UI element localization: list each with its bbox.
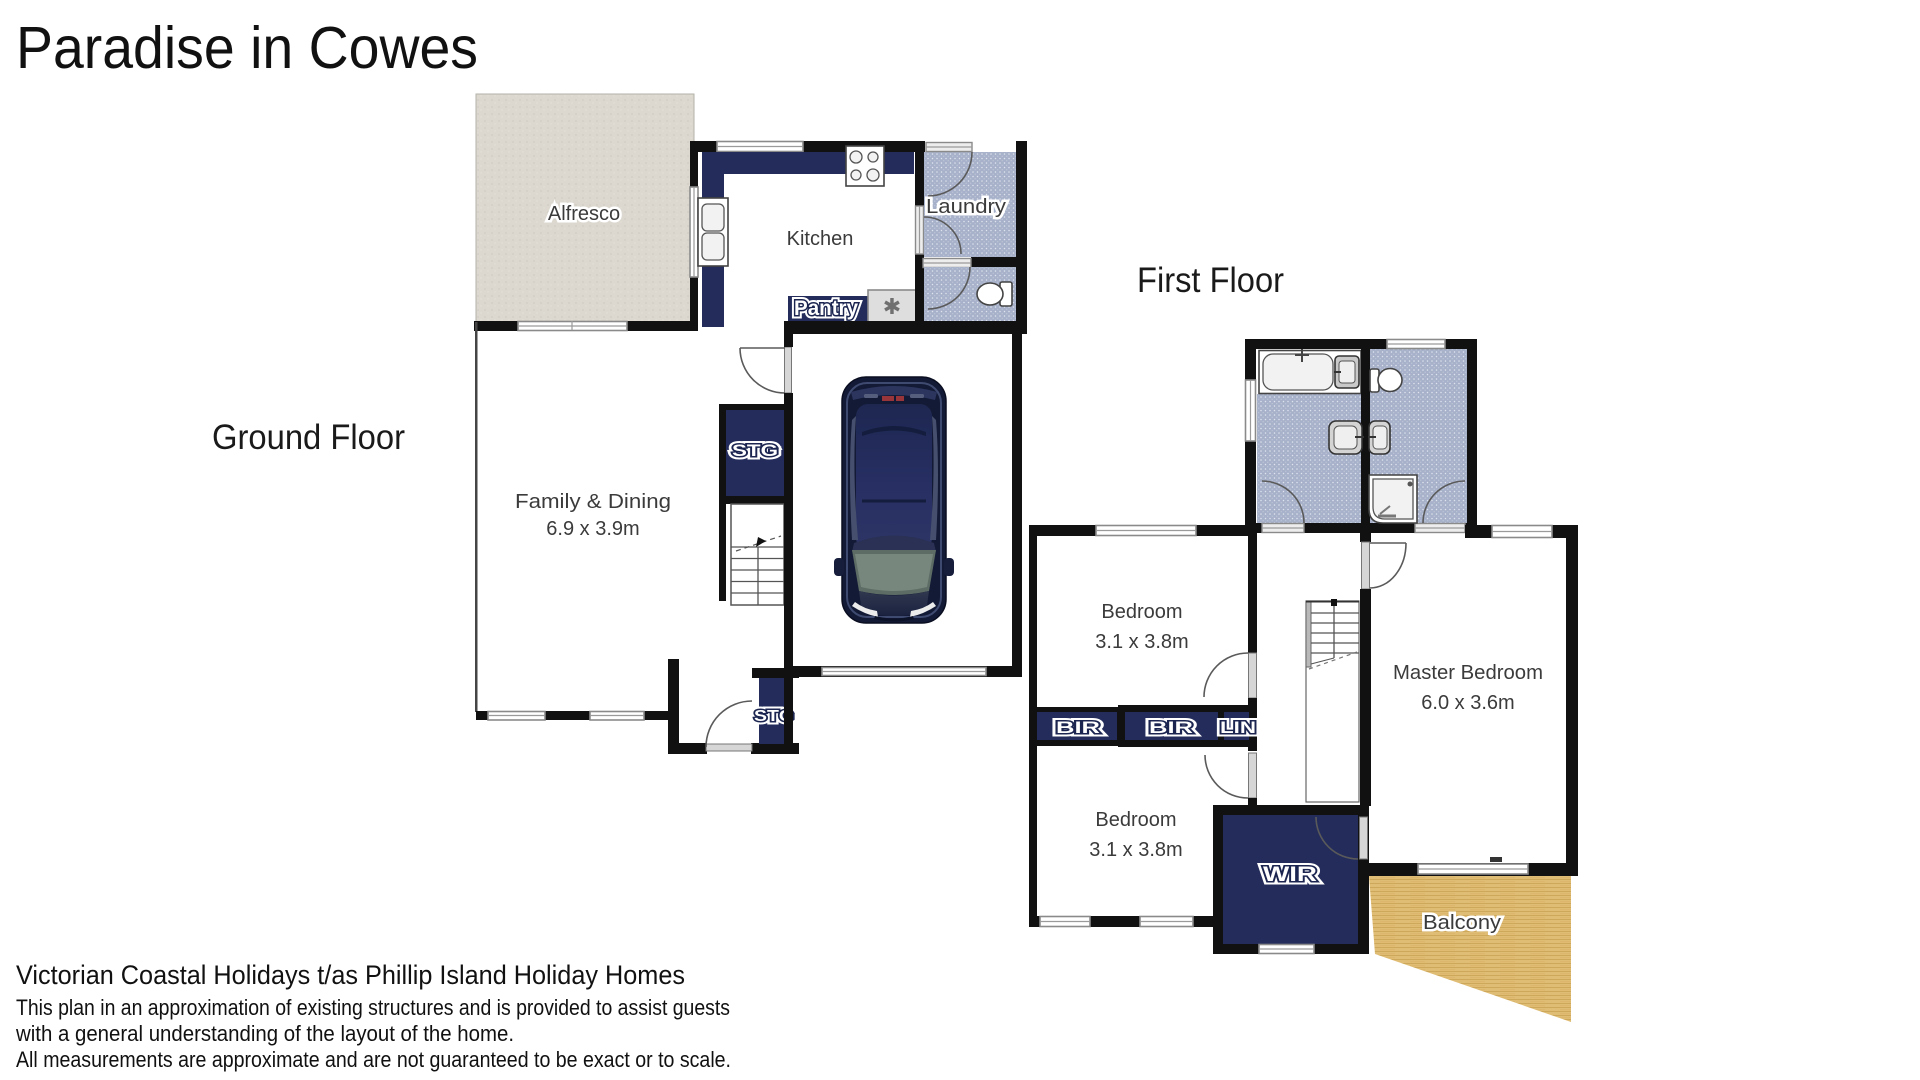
svg-text:Balcony: Balcony [1423, 912, 1501, 934]
svg-text:This plan in an approximation: This plan in an approximation of existin… [16, 995, 730, 1020]
svg-text:First Floor: First Floor [1137, 261, 1284, 300]
svg-text:BIR: BIR [1056, 718, 1100, 737]
svg-text:Bedroom: Bedroom [1095, 809, 1176, 831]
svg-text:Ground Floor: Ground Floor [212, 418, 405, 457]
svg-text:STG: STG [732, 441, 778, 460]
svg-text:Bedroom: Bedroom [1101, 601, 1182, 623]
svg-text:All measurements are approxima: All measurements are approximate and are… [16, 1047, 731, 1072]
svg-text:Laundry: Laundry [926, 196, 1006, 218]
svg-text:6.9 x 3.9m: 6.9 x 3.9m [546, 518, 639, 540]
svg-text:LIN: LIN [1220, 718, 1256, 737]
svg-text:3.1 x 3.8m: 3.1 x 3.8m [1095, 631, 1188, 653]
svg-text:Alfresco: Alfresco [548, 203, 620, 225]
svg-text:Kitchen: Kitchen [787, 228, 854, 250]
svg-text:Master Bedroom: Master Bedroom [1393, 662, 1543, 684]
svg-text:6.0 x 3.6m: 6.0 x 3.6m [1421, 692, 1514, 714]
svg-text:Paradise in Cowes: Paradise in Cowes [16, 15, 478, 81]
svg-text:Pantry: Pantry [794, 297, 858, 320]
svg-text:✱: ✱ [883, 294, 901, 319]
svg-text:BIR: BIR [1149, 718, 1193, 737]
svg-text:3.1 x 3.8m: 3.1 x 3.8m [1089, 839, 1182, 861]
svg-text:Victorian Coastal Holidays t/a: Victorian Coastal Holidays t/as Phillip … [16, 960, 685, 990]
svg-text:with a general understanding o: with a general understanding of the layo… [15, 1021, 514, 1046]
svg-text:Family & Dining: Family & Dining [515, 491, 671, 513]
svg-text:WIR: WIR [1263, 863, 1317, 886]
